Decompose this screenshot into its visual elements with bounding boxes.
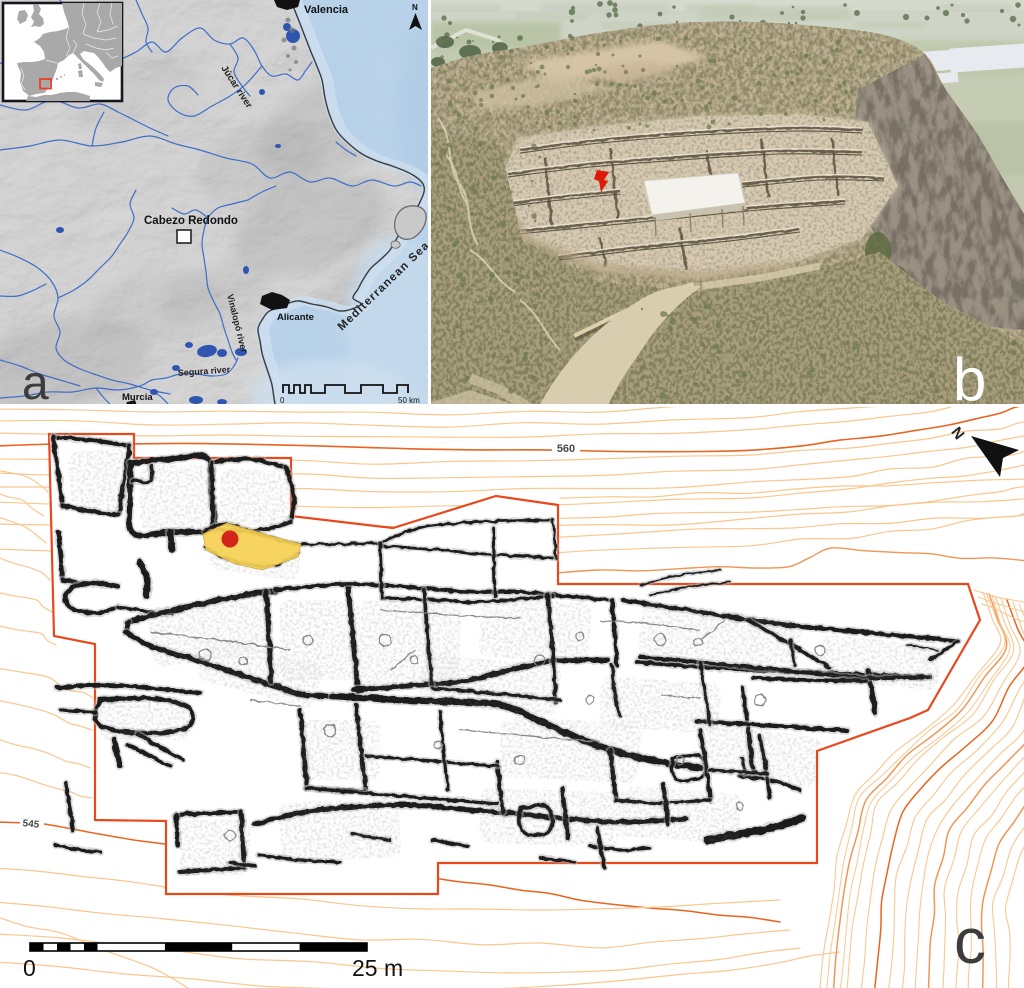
svg-text:50 km: 50 km	[398, 396, 420, 405]
svg-text:560: 560	[557, 443, 575, 455]
svg-text:545: 545	[22, 818, 40, 831]
svg-text:Alicante: Alicante	[277, 312, 314, 323]
svg-text:Cabezo Redondo: Cabezo Redondo	[144, 215, 238, 227]
svg-text:Valencia: Valencia	[304, 4, 349, 16]
svg-text:c: c	[954, 905, 986, 977]
svg-text:Murcia: Murcia	[122, 392, 153, 403]
svg-text:0: 0	[23, 955, 36, 981]
svg-text:a: a	[22, 357, 49, 410]
svg-text:0: 0	[280, 396, 285, 405]
svg-text:b: b	[953, 346, 986, 413]
svg-text:N: N	[412, 3, 418, 12]
svg-text:25 m: 25 m	[352, 955, 403, 981]
